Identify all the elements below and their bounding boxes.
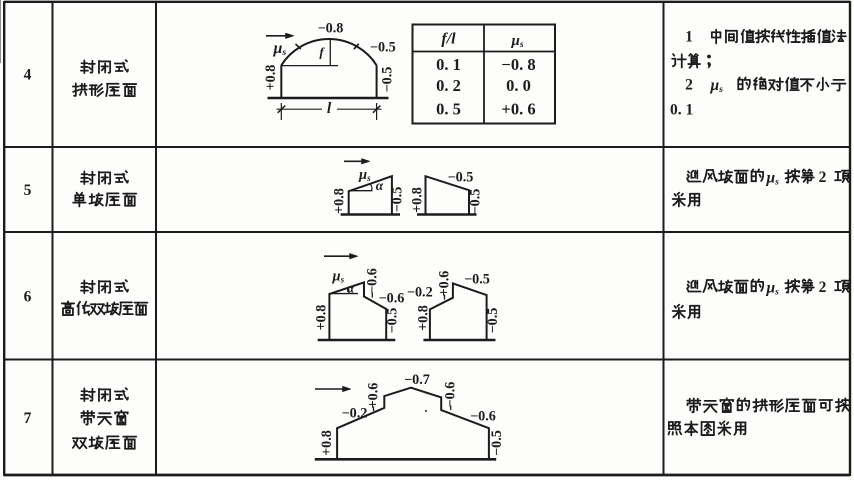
- svg-text:−0.8: −0.8: [318, 21, 344, 37]
- svg-text:1: 1: [685, 29, 693, 46]
- svg-text:−0.5: −0.5: [370, 40, 396, 56]
- svg-text:5: 5: [24, 182, 32, 199]
- svg-text:−0.5: −0.5: [464, 272, 490, 288]
- svg-text:−0.2: −0.2: [342, 406, 368, 422]
- svg-text:+0. 6: +0. 6: [501, 100, 535, 119]
- svg-text:7: 7: [24, 410, 32, 427]
- svg-text:0. 5: 0. 5: [436, 100, 461, 119]
- svg-text:α: α: [376, 178, 384, 193]
- svg-text:−0.2: −0.2: [407, 285, 433, 301]
- svg-text:+0.6: +0.6: [366, 383, 382, 409]
- svg-text:+0.8: +0.8: [332, 188, 348, 214]
- svg-text:0. 2: 0. 2: [436, 76, 461, 95]
- svg-text:4: 4: [24, 67, 32, 84]
- svg-text:+0.8: +0.8: [415, 305, 431, 331]
- svg-text:−0. 8: −0. 8: [501, 55, 535, 74]
- svg-text:α: α: [347, 281, 355, 296]
- svg-text:−0.6: −0.6: [470, 409, 496, 425]
- svg-text:+0.8: +0.8: [263, 65, 279, 91]
- svg-text:2: 2: [819, 279, 827, 296]
- svg-text:+0.8: +0.8: [319, 430, 335, 456]
- svg-text:−0.5: −0.5: [448, 170, 474, 186]
- svg-text:0. 0: 0. 0: [506, 76, 531, 95]
- svg-text:2: 2: [685, 77, 693, 94]
- svg-text:−0.6: −0.6: [379, 291, 405, 307]
- svg-text:2: 2: [819, 169, 827, 186]
- svg-text:−0.5: −0.5: [468, 189, 484, 215]
- svg-text:−0.5: −0.5: [380, 67, 396, 93]
- svg-text:−0.6: −0.6: [443, 382, 459, 408]
- svg-text:l: l: [327, 100, 332, 117]
- svg-text:−0.5: −0.5: [489, 430, 505, 456]
- svg-text:f/l: f/l: [441, 31, 456, 48]
- svg-text:0. 1: 0. 1: [670, 102, 693, 119]
- svg-text:6: 6: [24, 289, 32, 306]
- svg-text:+0.8: +0.8: [410, 187, 426, 213]
- svg-text:−0.7: −0.7: [404, 372, 430, 388]
- svg-text:−0.5: −0.5: [390, 187, 406, 213]
- svg-text:+0.8: +0.8: [314, 305, 330, 331]
- svg-text:−0.5: −0.5: [384, 308, 400, 334]
- svg-text:−0.5: −0.5: [485, 308, 501, 334]
- svg-text:+0.6: +0.6: [437, 271, 453, 297]
- svg-text:0. 1: 0. 1: [436, 55, 461, 74]
